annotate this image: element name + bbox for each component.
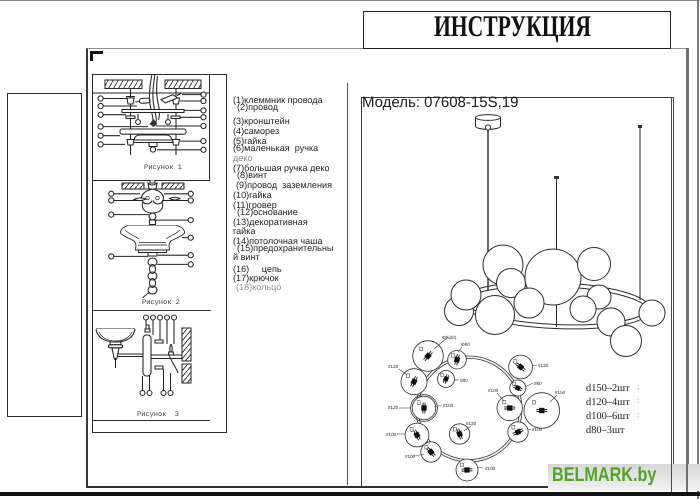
svg-text:#120: #120 <box>538 363 549 368</box>
svg-text:Φ80: Φ80 <box>461 342 470 347</box>
svg-text:Φ(520): Φ(520) <box>442 335 457 340</box>
svg-text:#80: #80 <box>460 378 468 383</box>
svg-text:#100: #100 <box>532 427 543 432</box>
svg-text:#150: #150 <box>555 390 566 395</box>
svg-text:#100: #100 <box>405 454 416 459</box>
svg-text:#120: #120 <box>466 421 477 426</box>
svg-text:#100: #100 <box>443 403 454 408</box>
svg-text:#120: #120 <box>388 405 399 410</box>
svg-text:#120: #120 <box>388 364 399 369</box>
svg-text:#100: #100 <box>386 432 397 437</box>
svg-text:#100: #100 <box>485 466 496 471</box>
svg-text:#60: #60 <box>534 381 542 386</box>
svg-text:#100: #100 <box>488 388 499 393</box>
